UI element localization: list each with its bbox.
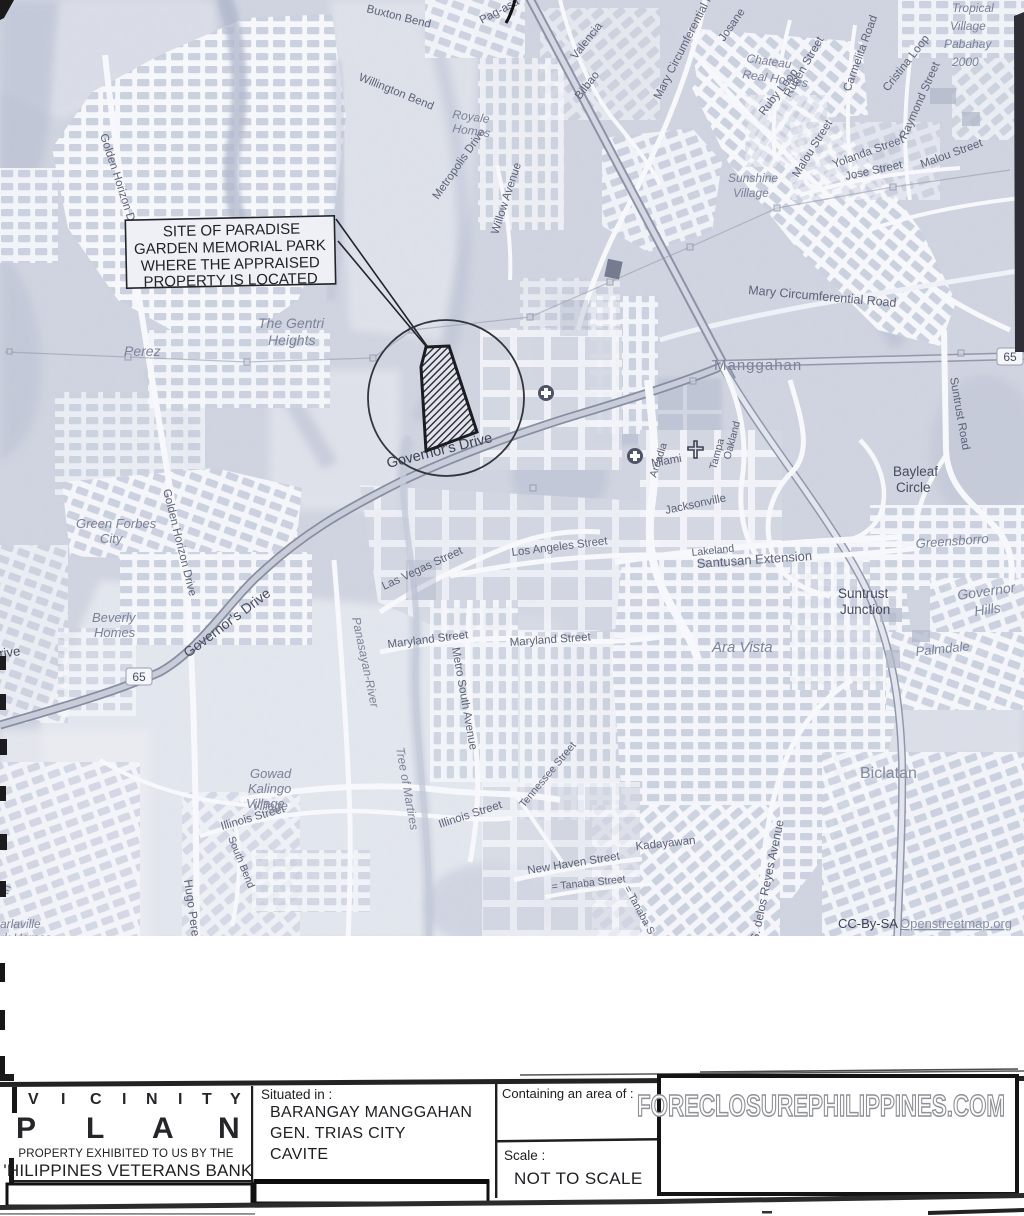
svg-text:CAVITE: CAVITE <box>270 1146 328 1163</box>
svg-text:2000: 2000 <box>951 55 979 69</box>
svg-text:VICINITY: VICINITY <box>28 1091 241 1108</box>
svg-text:Junction: Junction <box>840 602 890 617</box>
svg-text:CC-By-SA: CC-By-SA <box>838 916 898 931</box>
svg-text:arlaville: arlaville <box>0 917 41 931</box>
svg-text:Homes: Homes <box>94 625 136 640</box>
svg-text:Sunshine: Sunshine <box>728 171 778 185</box>
svg-text:Heights: Heights <box>268 332 315 348</box>
svg-text:BARANGAY MANGGAHAN: BARANGAY MANGGAHAN <box>270 1104 472 1121</box>
svg-text:GEN. TRIAS CITY: GEN. TRIAS CITY <box>270 1125 406 1142</box>
svg-text:Village: Village <box>950 19 986 33</box>
svg-text:Containing an area of :: Containing an area of : <box>502 1086 634 1101</box>
svg-text:Scale :: Scale : <box>504 1148 545 1163</box>
svg-text:Biclatan: Biclatan <box>860 765 917 782</box>
svg-text:Village: Village <box>252 799 288 813</box>
svg-text:Suntrust: Suntrust <box>838 586 889 601</box>
svg-text:PROPERTY EXHIBITED TO US BY TH: PROPERTY EXHIBITED TO US BY THE <box>18 1148 233 1160</box>
svg-text:Kalingo: Kalingo <box>248 781 291 796</box>
svg-text:Manggahan: Manggahan <box>714 357 802 374</box>
svg-text:Village: Village <box>733 186 769 200</box>
svg-text:65: 65 <box>132 670 146 684</box>
svg-text:The Gentri: The Gentri <box>258 315 325 331</box>
svg-text:Situated in :: Situated in : <box>261 1087 332 1102</box>
svg-text:Ara Vista: Ara Vista <box>711 639 773 656</box>
svg-text:'HILIPPINES VETERANS BANK: 'HILIPPINES VETERANS BANK <box>3 1161 253 1180</box>
svg-text:Pabahay: Pabahay <box>944 37 992 51</box>
svg-text:Tropical: Tropical <box>952 1 994 15</box>
svg-text:Circle: Circle <box>896 480 931 495</box>
svg-text:Beverly: Beverly <box>92 610 137 625</box>
svg-text:65: 65 <box>1003 350 1017 364</box>
svg-text:Gowad: Gowad <box>250 766 292 781</box>
svg-text:NOT TO SCALE: NOT TO SCALE <box>514 1169 643 1188</box>
svg-text:Green Forbes: Green Forbes <box>76 516 157 531</box>
svg-text:Perez: Perez <box>124 343 161 359</box>
svg-text:City: City <box>100 531 124 546</box>
svg-text:Bayleaf: Bayleaf <box>893 464 938 479</box>
svg-text:PLAN: PLAN <box>16 1112 240 1145</box>
svg-text:FORECLOSUREPHILIPPINES.COM: FORECLOSUREPHILIPPINES.COM <box>637 1088 1005 1123</box>
